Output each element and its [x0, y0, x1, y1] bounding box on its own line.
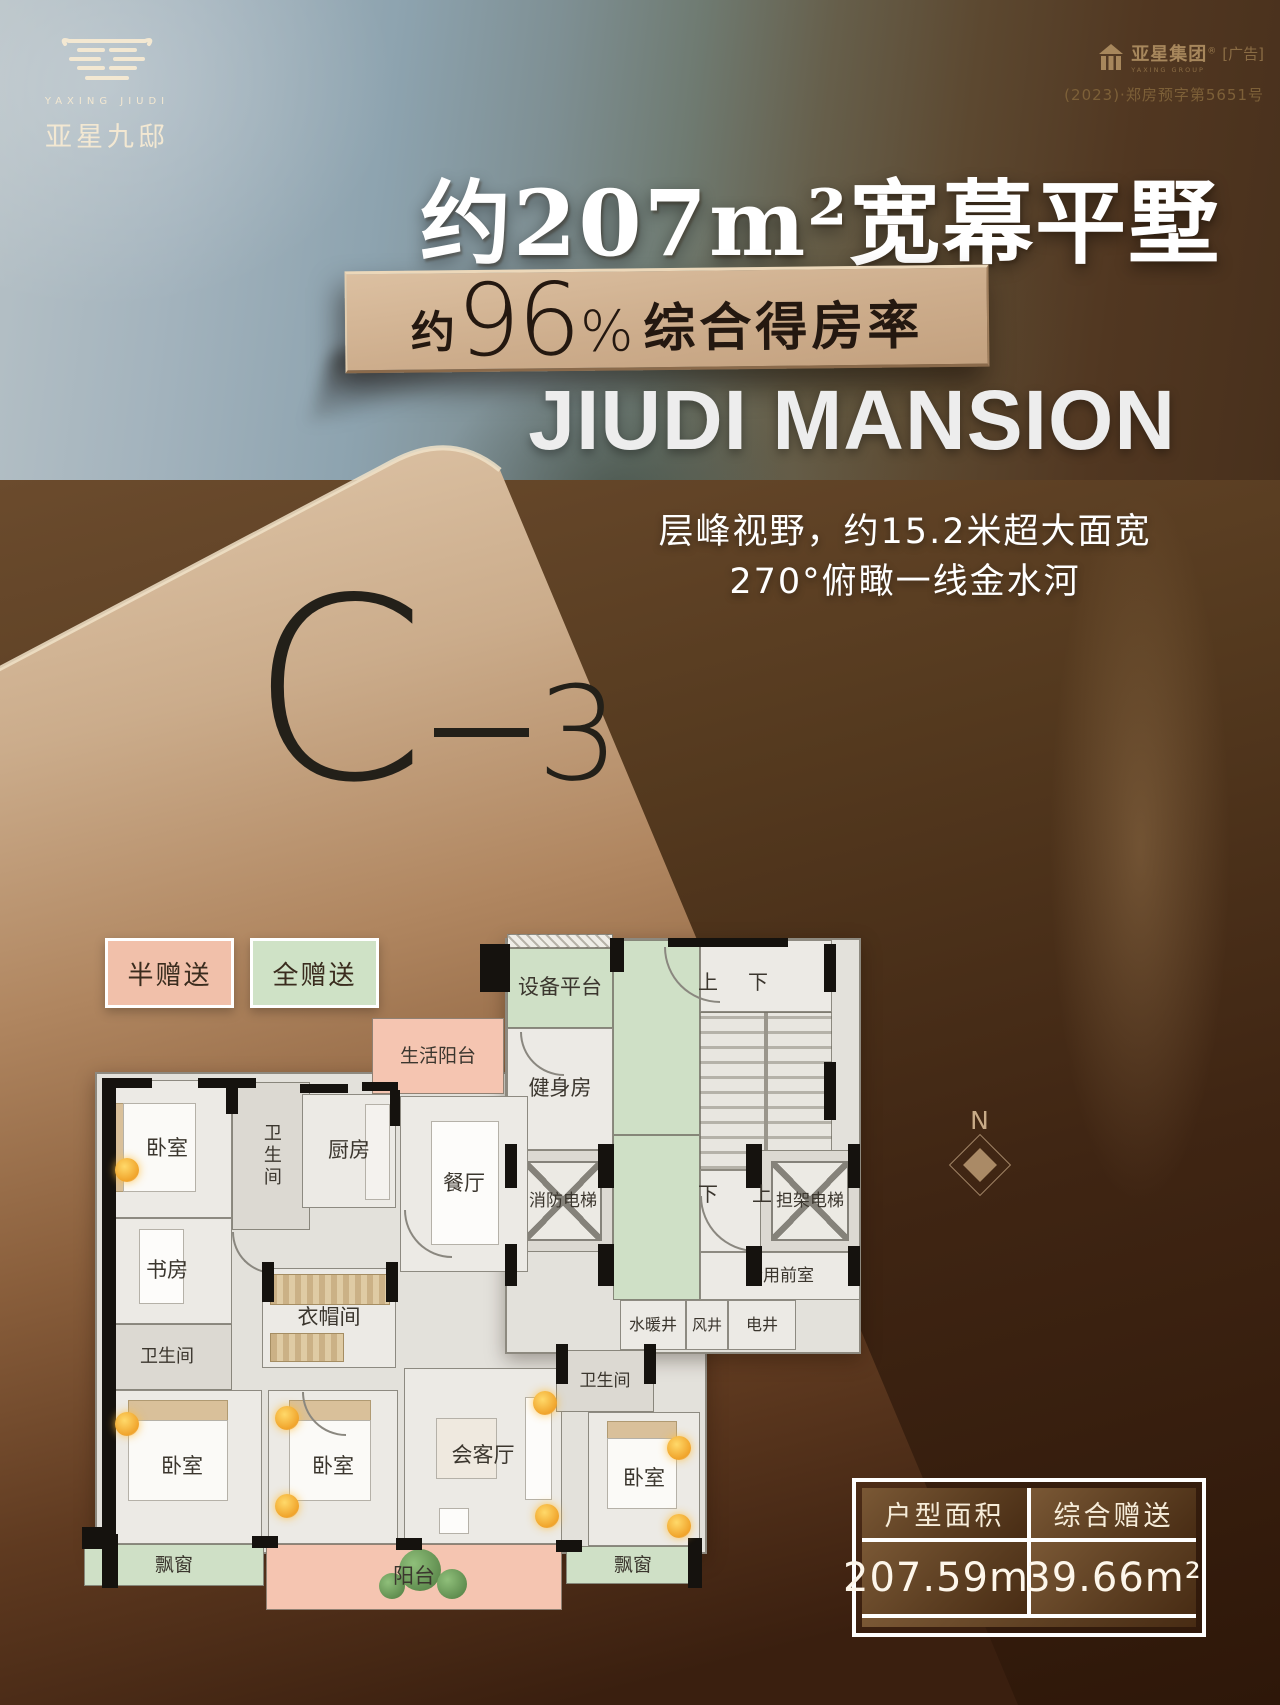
developer-name-en: YAXING GROUP [1131, 66, 1216, 74]
brand-gate-icon [57, 34, 157, 86]
legend-full-gift: 全赠送 [250, 938, 379, 1008]
compass-diamond-icon [949, 1134, 1011, 1196]
registered-mark: ® [1207, 47, 1216, 57]
banner-percent-value: 96 [456, 270, 578, 371]
unit-letter: C [250, 585, 426, 799]
legend-half-gift: 半赠送 [105, 938, 234, 1008]
brand-logo: YAXING JIUDI 亚星九邸 [22, 34, 192, 154]
compass: N [944, 1106, 1016, 1187]
summary-header-gift: 综合赠送 [1031, 1488, 1196, 1538]
brand-chinese: 亚星九邸 [22, 115, 192, 154]
summary-base-strip [862, 1618, 1196, 1627]
rate-banner: 约 96 % 综合得房率 [344, 265, 989, 374]
unit-dash [434, 728, 529, 737]
description-block: 层峰视野，约15.2米超大面宽 270°俯瞰一线金水河 [655, 508, 1155, 607]
developer-name-cn: 亚星集团 [1131, 44, 1207, 65]
description-line-2: 270°俯瞰一线金水河 [655, 558, 1155, 608]
developer-corner: 亚星集团® YAXING GROUP [广告] (2023)·郑房预字第5651… [1014, 40, 1264, 105]
compass-diamond-inner [963, 1148, 997, 1182]
banner-percent-sign: % [580, 299, 634, 365]
developer-building-icon [1097, 42, 1125, 72]
summary-header-area: 户型面积 [862, 1488, 1027, 1538]
summary-table: 户型面积 综合赠送 207.59m² 39.66m² [852, 1478, 1206, 1637]
compass-north-label: N [944, 1106, 1016, 1135]
brand-latin: YAXING JIUDI [22, 96, 192, 107]
legend-full-label: 全赠送 [272, 955, 356, 992]
summary-value-area: 207.59m² [862, 1542, 1027, 1614]
unit-code: C 3 [250, 585, 620, 799]
developer-name: 亚星集团® YAXING GROUP [1131, 40, 1216, 74]
legend-half-label: 半赠送 [127, 955, 211, 992]
subtitle-english: JIUDI MANSION [528, 372, 1176, 469]
banner-text: 综合得房率 [643, 283, 924, 361]
unit-number: 3 [537, 676, 620, 793]
permit-number: (2023)·郑房预字第5651号 [1014, 84, 1264, 105]
summary-value-gift: 39.66m² [1031, 1542, 1196, 1614]
banner-about: 约 [411, 296, 456, 360]
ad-tag: [广告] [1222, 43, 1264, 64]
description-line-1: 层峰视野，约15.2米超大面宽 [655, 508, 1155, 558]
